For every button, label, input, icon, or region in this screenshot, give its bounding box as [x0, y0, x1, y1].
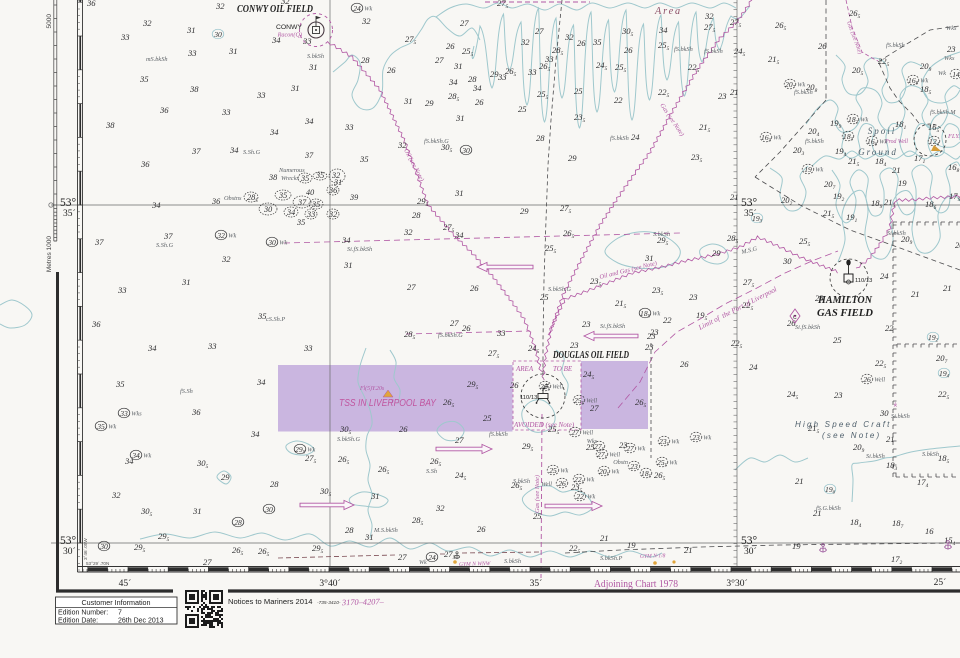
svg-text:33: 33	[120, 32, 130, 42]
svg-text:32: 32	[216, 231, 225, 240]
svg-text:39: 39	[349, 193, 358, 202]
svg-text:S.bkSh: S.bkSh	[513, 478, 530, 485]
svg-text:Wks: Wks	[131, 411, 142, 418]
svg-text:25: 25	[483, 413, 492, 423]
svg-text:35: 35	[311, 200, 320, 209]
svg-text:29: 29	[425, 98, 434, 108]
svg-text:TSS IN LIVERPOOL BAY: TSS IN LIVERPOOL BAY	[339, 398, 437, 409]
svg-text:31: 31	[364, 532, 374, 542]
svg-text:Wk: Wk	[637, 446, 645, 453]
svg-text:34: 34	[472, 83, 482, 93]
svg-text:31: 31	[370, 491, 380, 501]
svg-text:110/13: 110/13	[520, 395, 537, 401]
svg-text:5000: 5000	[46, 14, 53, 29]
svg-text:S.Sh: S.Sh	[426, 468, 437, 475]
svg-text:35: 35	[296, 218, 305, 227]
svg-text:24: 24	[880, 271, 889, 281]
svg-text:32: 32	[215, 1, 225, 11]
svg-text:21: 21	[684, 545, 693, 555]
svg-text:S.bkSh: S.bkSh	[307, 53, 324, 60]
svg-text:fS.G.bkSh: fS.G.bkSh	[816, 505, 841, 512]
svg-text:25: 25	[518, 104, 527, 114]
svg-text:36: 36	[191, 407, 201, 417]
svg-text:36: 36	[328, 186, 338, 195]
svg-text:28: 28	[361, 55, 370, 65]
svg-text:GAS FIELD: GAS FIELD	[817, 308, 873, 319]
svg-text:Wk: Wk	[586, 477, 594, 484]
svg-text:30: 30	[99, 542, 108, 551]
svg-text:fS.bkSh.G: fS.bkSh.G	[438, 332, 463, 339]
svg-text:Si.bkSh: Si.bkSh	[891, 413, 910, 420]
svg-text:31: 31	[403, 96, 413, 106]
svg-text:FLY.S: FLY.S	[947, 133, 960, 140]
svg-text:31: 31	[290, 83, 300, 93]
svg-text:27: 27	[407, 282, 416, 292]
svg-text:Wk: Wk	[773, 135, 781, 142]
svg-text:36: 36	[86, 0, 96, 8]
svg-text:30: 30	[461, 146, 470, 155]
svg-text:26: 26	[387, 65, 396, 75]
svg-text:53°29´.70N: 53°29´.70N	[86, 561, 109, 566]
svg-text:21: 21	[943, 283, 952, 293]
svg-text:Wks: Wks	[944, 55, 955, 62]
svg-text:Obstn: Obstn	[613, 459, 628, 466]
svg-text:32: 32	[221, 254, 231, 264]
svg-text:33: 33	[306, 210, 315, 219]
svg-text:GYM N·1/8: GYM N·1/8	[640, 553, 666, 560]
svg-text:3°46´.05W: 3°46´.05W	[83, 538, 88, 560]
svg-text:30: 30	[263, 205, 272, 214]
svg-text:Wk: Wk	[652, 311, 660, 318]
svg-text:23: 23	[645, 342, 654, 352]
svg-text:34: 34	[271, 35, 281, 45]
svg-text:3170–4207–: 3170–4207–	[341, 597, 385, 607]
svg-text:fS.bkSh.M: fS.bkSh.M	[930, 109, 956, 116]
svg-text:34: 34	[151, 200, 161, 210]
svg-text:23: 23	[947, 44, 956, 54]
svg-text:35: 35	[96, 422, 105, 431]
svg-text:Notices to Mariners 2014: Notices to Mariners 2014	[228, 597, 312, 606]
svg-text:36: 36	[140, 159, 150, 169]
svg-text:37: 37	[191, 146, 201, 156]
svg-text:Well: Well	[874, 377, 885, 384]
svg-text:35: 35	[139, 74, 149, 84]
svg-text:fS.bkSh: fS.bkSh	[805, 138, 824, 145]
svg-text:(see Note): (see Note)	[822, 431, 881, 440]
svg-text:27: 27	[203, 557, 212, 567]
svg-text:fS.bkSh: fS.bkSh	[886, 42, 905, 49]
svg-text:Wk: Wk	[938, 70, 946, 77]
svg-text:21: 21	[911, 289, 920, 299]
svg-text:16: 16	[925, 526, 934, 536]
svg-text:Gas (see Note): Gas (see Note)	[534, 475, 541, 513]
svg-text:34: 34	[286, 208, 295, 217]
svg-text:C: C	[793, 315, 797, 321]
svg-text:36: 36	[91, 319, 101, 329]
svg-text:33: 33	[527, 67, 537, 77]
svg-text:fS.Sh: fS.Sh	[180, 388, 193, 395]
svg-text:S.bkSh.G: S.bkSh.G	[548, 286, 572, 293]
svg-text:38: 38	[268, 173, 277, 182]
svg-text:CONWY: CONWY	[276, 24, 303, 31]
svg-text:35: 35	[115, 379, 125, 389]
svg-text:31: 31	[186, 25, 196, 35]
svg-text:38: 38	[105, 120, 115, 130]
svg-text:30: 30	[264, 505, 273, 514]
svg-text:Edition Date:: Edition Date:	[58, 618, 98, 625]
svg-text:Si.fS.bkSh: Si.fS.bkSh	[347, 246, 372, 253]
svg-text:35´: 35´	[63, 208, 76, 219]
svg-text:26th Dec 2013: 26th Dec 2013	[118, 618, 164, 625]
svg-text:32: 32	[142, 18, 152, 28]
svg-text:22: 22	[663, 315, 672, 325]
svg-text:23: 23	[834, 390, 843, 400]
svg-text:34: 34	[304, 116, 314, 126]
svg-text:fS.bkSh: fS.bkSh	[489, 431, 508, 438]
svg-text:fS.bkSh: fS.bkSh	[610, 135, 629, 142]
svg-text:35: 35	[592, 37, 602, 47]
svg-text:25: 25	[586, 442, 595, 452]
svg-text:27: 27	[455, 435, 464, 445]
svg-text:24: 24	[353, 4, 361, 13]
svg-text:32: 32	[704, 11, 714, 21]
svg-text:30´: 30´	[63, 546, 76, 557]
svg-text:Prod Well: Prod Well	[884, 139, 908, 145]
svg-text:AVOIDED (see Note): AVOIDED (see Note)	[513, 421, 575, 429]
svg-text:27: 27	[590, 403, 599, 413]
svg-text:21: 21	[730, 192, 739, 202]
svg-text:26: 26	[470, 283, 479, 293]
svg-text:31: 31	[228, 46, 238, 56]
svg-text:23: 23	[692, 433, 700, 442]
svg-text:14: 14	[952, 70, 960, 79]
svg-text:31: 31	[453, 61, 463, 71]
svg-text:Wk: Wk	[671, 439, 679, 446]
svg-text:3°40´: 3°40´	[319, 578, 340, 589]
svg-text:26: 26	[462, 323, 471, 333]
svg-text:33: 33	[119, 409, 128, 418]
svg-text:19: 19	[627, 540, 636, 550]
svg-text:23: 23	[570, 340, 579, 350]
svg-text:21: 21	[600, 533, 609, 543]
svg-text:S.bkSh: S.bkSh	[504, 558, 521, 565]
svg-text:21: 21	[795, 476, 804, 486]
svg-text:HAMILTON: HAMILTON	[817, 295, 872, 306]
svg-text:32: 32	[328, 210, 337, 219]
svg-text:24: 24	[631, 132, 640, 142]
svg-text:S.bkSh: S.bkSh	[653, 231, 670, 238]
svg-text:Wk: Wk	[815, 167, 823, 174]
svg-text:29: 29	[568, 153, 577, 163]
svg-text:34: 34	[454, 230, 464, 240]
svg-text:29: 29	[712, 248, 721, 258]
svg-text:7: 7	[118, 610, 122, 617]
svg-text:33: 33	[302, 36, 312, 46]
svg-text:32: 32	[564, 32, 574, 42]
svg-text:33: 33	[221, 107, 231, 117]
svg-text:Wk: Wk	[143, 453, 151, 460]
svg-text:33: 33	[344, 122, 354, 132]
svg-text:30: 30	[879, 408, 889, 418]
svg-text:27: 27	[435, 55, 444, 65]
svg-text:34: 34	[256, 377, 266, 387]
svg-text:30: 30	[267, 238, 276, 247]
svg-text:33: 33	[303, 343, 313, 353]
svg-text:Wk: Wk	[669, 460, 677, 467]
svg-text:Wks: Wks	[946, 25, 957, 32]
svg-text:fS.bkSh: fS.bkSh	[674, 46, 693, 53]
svg-text:Obstns: Obstns	[224, 195, 242, 202]
svg-text:Spoil: Spoil	[868, 126, 897, 136]
svg-text:26: 26	[818, 41, 827, 51]
svg-text:37: 37	[297, 198, 307, 207]
svg-text:36: 36	[159, 105, 169, 115]
svg-text:Wk: Wk	[108, 424, 116, 431]
svg-text:31: 31	[455, 113, 465, 123]
svg-text:35´: 35´	[744, 208, 757, 219]
svg-text:Area: Area	[654, 5, 682, 17]
svg-text:M.S.bkSh: M.S.bkSh	[373, 527, 398, 534]
svg-text:28: 28	[345, 525, 354, 535]
svg-text:53°: 53°	[60, 197, 77, 209]
svg-text:35: 35	[300, 174, 309, 183]
svg-text:⨰: ⨰	[893, 400, 898, 409]
svg-text:32: 32	[403, 227, 413, 237]
svg-text:S.bkSh: S.bkSh	[922, 451, 939, 458]
svg-text:35: 35	[315, 171, 324, 180]
svg-text:23: 23	[650, 327, 659, 337]
svg-text:Metres 1000: Metres 1000	[46, 236, 53, 273]
svg-text:33: 33	[207, 341, 217, 351]
svg-text:34: 34	[147, 343, 157, 353]
svg-text:25: 25	[574, 86, 583, 96]
svg-text:Customer Information: Customer Information	[81, 598, 150, 607]
svg-text:26: 26	[510, 380, 519, 390]
svg-text:31: 31	[644, 253, 654, 263]
svg-text:25: 25	[833, 335, 842, 345]
svg-text:Wk: Wk	[279, 240, 287, 247]
svg-text:27: 27	[571, 428, 580, 437]
svg-text:34: 34	[250, 429, 260, 439]
svg-text:mS.bkSh: mS.bkSh	[146, 56, 168, 63]
svg-text:21: 21	[730, 87, 739, 97]
svg-text:fS.bkSh: fS.bkSh	[704, 48, 723, 55]
svg-text:31: 31	[454, 188, 464, 198]
svg-text:19: 19	[898, 178, 907, 188]
svg-text:27: 27	[535, 26, 544, 36]
svg-text:Wk: Wk	[228, 233, 236, 240]
svg-text:Well: Well	[552, 384, 563, 391]
svg-text:23: 23	[582, 319, 591, 329]
svg-text:45´: 45´	[119, 578, 132, 589]
svg-text:23: 23	[815, 293, 824, 303]
svg-text:33: 33	[256, 90, 266, 100]
svg-text:27: 27	[398, 552, 407, 562]
svg-text:19: 19	[792, 541, 801, 551]
svg-text:26: 26	[624, 45, 633, 55]
svg-text:Numerous: Numerous	[278, 167, 305, 174]
svg-text:34: 34	[229, 145, 239, 155]
svg-text:26: 26	[477, 524, 486, 534]
svg-text:-735-3410-: -735-3410-	[317, 600, 341, 606]
svg-text:Wk: Wk	[879, 139, 887, 146]
svg-text:26: 26	[680, 359, 689, 369]
svg-text:27: 27	[460, 18, 469, 28]
svg-text:33: 33	[117, 285, 127, 295]
svg-text:30´: 30´	[744, 546, 757, 557]
svg-text:CONWY OIL FIELD: CONWY OIL FIELD	[237, 4, 313, 15]
svg-text:110/13: 110/13	[855, 278, 872, 284]
svg-text:Well: Well	[541, 481, 552, 488]
svg-text:fS.bkSh.G: fS.bkSh.G	[424, 138, 449, 145]
svg-text:35: 35	[278, 191, 287, 200]
svg-text:28: 28	[234, 518, 242, 527]
svg-text:32: 32	[397, 140, 407, 150]
svg-text:23: 23	[718, 91, 727, 101]
svg-text:21: 21	[892, 165, 901, 175]
svg-text:31: 31	[181, 277, 191, 287]
svg-text:26: 26	[577, 38, 586, 48]
svg-text:34: 34	[269, 127, 279, 137]
svg-text:Wk: Wk	[860, 117, 868, 124]
svg-text:Si.fS.bkSh: Si.fS.bkSh	[600, 323, 625, 330]
svg-text:32: 32	[111, 490, 121, 500]
svg-text:53°: 53°	[60, 535, 77, 547]
svg-text:30: 30	[213, 30, 222, 39]
svg-text:37: 37	[163, 231, 173, 241]
svg-text:31: 31	[308, 62, 318, 72]
svg-text:Wrecks: Wrecks	[281, 175, 299, 182]
svg-text:25: 25	[549, 466, 557, 475]
svg-text:S.Sh.G: S.Sh.G	[243, 149, 261, 156]
svg-text:22: 22	[885, 323, 894, 333]
svg-text:fS.bkSh: fS.bkSh	[794, 89, 813, 96]
svg-text:3°30´: 3°30´	[726, 578, 747, 589]
svg-text:34: 34	[341, 235, 351, 245]
svg-text:26: 26	[446, 41, 455, 51]
svg-text:32: 32	[361, 16, 371, 26]
svg-text:34: 34	[124, 456, 134, 466]
svg-text:32: 32	[280, 0, 290, 6]
svg-text:34: 34	[448, 77, 458, 87]
svg-text:23: 23	[630, 462, 638, 471]
svg-text:Wk: Wk	[587, 494, 595, 501]
svg-text:Adjoining Chart 1978: Adjoining Chart 1978	[594, 579, 678, 590]
svg-text:53°: 53°	[741, 197, 758, 209]
svg-text:TO BE: TO BE	[553, 365, 573, 373]
svg-text:19: 19	[804, 165, 812, 174]
svg-text:23: 23	[619, 440, 628, 450]
svg-text:21: 21	[886, 434, 895, 444]
svg-text:Fl(5)Y.20s: Fl(5)Y.20s	[359, 385, 385, 392]
svg-text:Si.bkSh: Si.bkSh	[887, 230, 906, 237]
svg-text:Well: Well	[582, 430, 593, 437]
svg-text:Wk: Wk	[797, 82, 805, 89]
svg-text:35´: 35´	[530, 578, 543, 589]
svg-text:33: 33	[497, 72, 507, 82]
svg-text:24: 24	[749, 362, 758, 372]
svg-text:32: 32	[435, 503, 445, 513]
svg-text:30: 30	[782, 256, 792, 266]
svg-text:Wk: Wk	[611, 469, 619, 476]
svg-text:28: 28	[270, 479, 279, 489]
svg-text:31: 31	[343, 260, 353, 270]
svg-text:DOUGLAS OIL FIELD: DOUGLAS OIL FIELD	[552, 350, 629, 361]
svg-text:40: 40	[306, 188, 314, 197]
svg-text:28: 28	[536, 133, 545, 143]
svg-text:24: 24	[428, 553, 436, 562]
svg-text:29: 29	[221, 472, 230, 482]
svg-text:53°: 53°	[741, 535, 758, 547]
svg-text:26: 26	[863, 375, 871, 384]
svg-text:cS.Sh.P: cS.Sh.P	[266, 316, 285, 323]
svg-text:34: 34	[658, 25, 668, 35]
svg-text:33: 33	[187, 48, 197, 58]
svg-text:AREA: AREA	[515, 365, 534, 373]
svg-text:Wk: Wk	[419, 560, 427, 566]
svg-text:27: 27	[450, 318, 459, 328]
svg-text:S.Sh.G: S.Sh.G	[156, 242, 174, 249]
svg-text:26: 26	[558, 479, 566, 488]
svg-text:28: 28	[412, 210, 421, 220]
svg-text:Wk: Wk	[560, 468, 568, 475]
svg-text:33: 33	[496, 328, 506, 338]
svg-text:25: 25	[540, 292, 549, 302]
svg-text:Si.fS.bkSh: Si.fS.bkSh	[795, 324, 820, 331]
svg-text:29: 29	[520, 206, 529, 216]
svg-text:Edition Number:: Edition Number:	[58, 610, 108, 617]
svg-text:35: 35	[359, 154, 369, 164]
svg-text:S.bkSh.G: S.bkSh.G	[337, 436, 361, 443]
svg-text:31: 31	[192, 506, 202, 516]
svg-text:Si.bkSh: Si.bkSh	[866, 453, 885, 460]
svg-text:23: 23	[689, 292, 698, 302]
svg-text:Wk: Wk	[364, 6, 372, 13]
svg-text:25´: 25´	[934, 577, 947, 588]
svg-text:26: 26	[475, 97, 484, 107]
svg-text:26: 26	[399, 424, 408, 434]
svg-text:37: 37	[94, 237, 104, 247]
svg-text:37: 37	[304, 151, 314, 160]
svg-text:32: 32	[520, 37, 530, 47]
svg-text:Wk: Wk	[703, 435, 711, 442]
svg-text:38: 38	[189, 84, 199, 94]
svg-text:25: 25	[533, 511, 542, 521]
svg-text:36: 36	[211, 197, 221, 206]
svg-text:S.bkSh.P: S.bkSh.P	[600, 555, 623, 562]
svg-text:22: 22	[614, 95, 623, 105]
svg-text:Well: Well	[609, 452, 620, 459]
